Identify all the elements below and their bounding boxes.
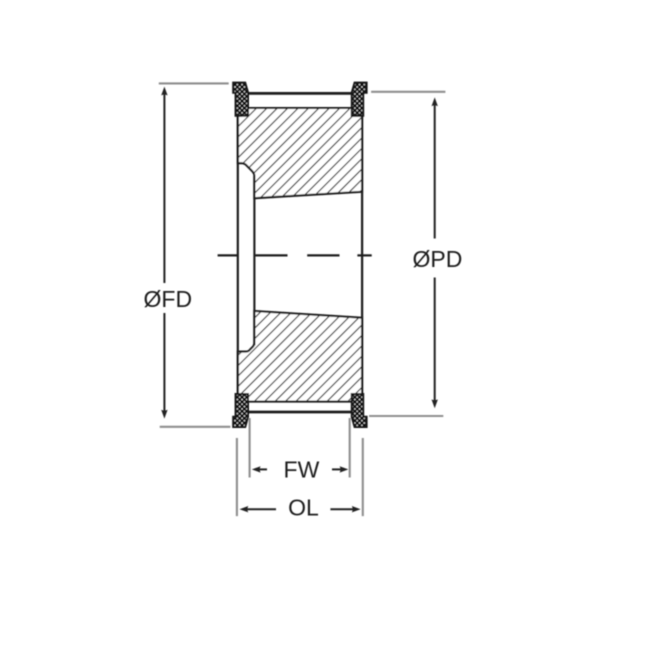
- svg-text:ØPD: ØPD: [412, 246, 462, 272]
- svg-text:OL: OL: [288, 495, 319, 521]
- svg-text:FW: FW: [284, 456, 320, 482]
- svg-text:ØFD: ØFD: [144, 286, 193, 312]
